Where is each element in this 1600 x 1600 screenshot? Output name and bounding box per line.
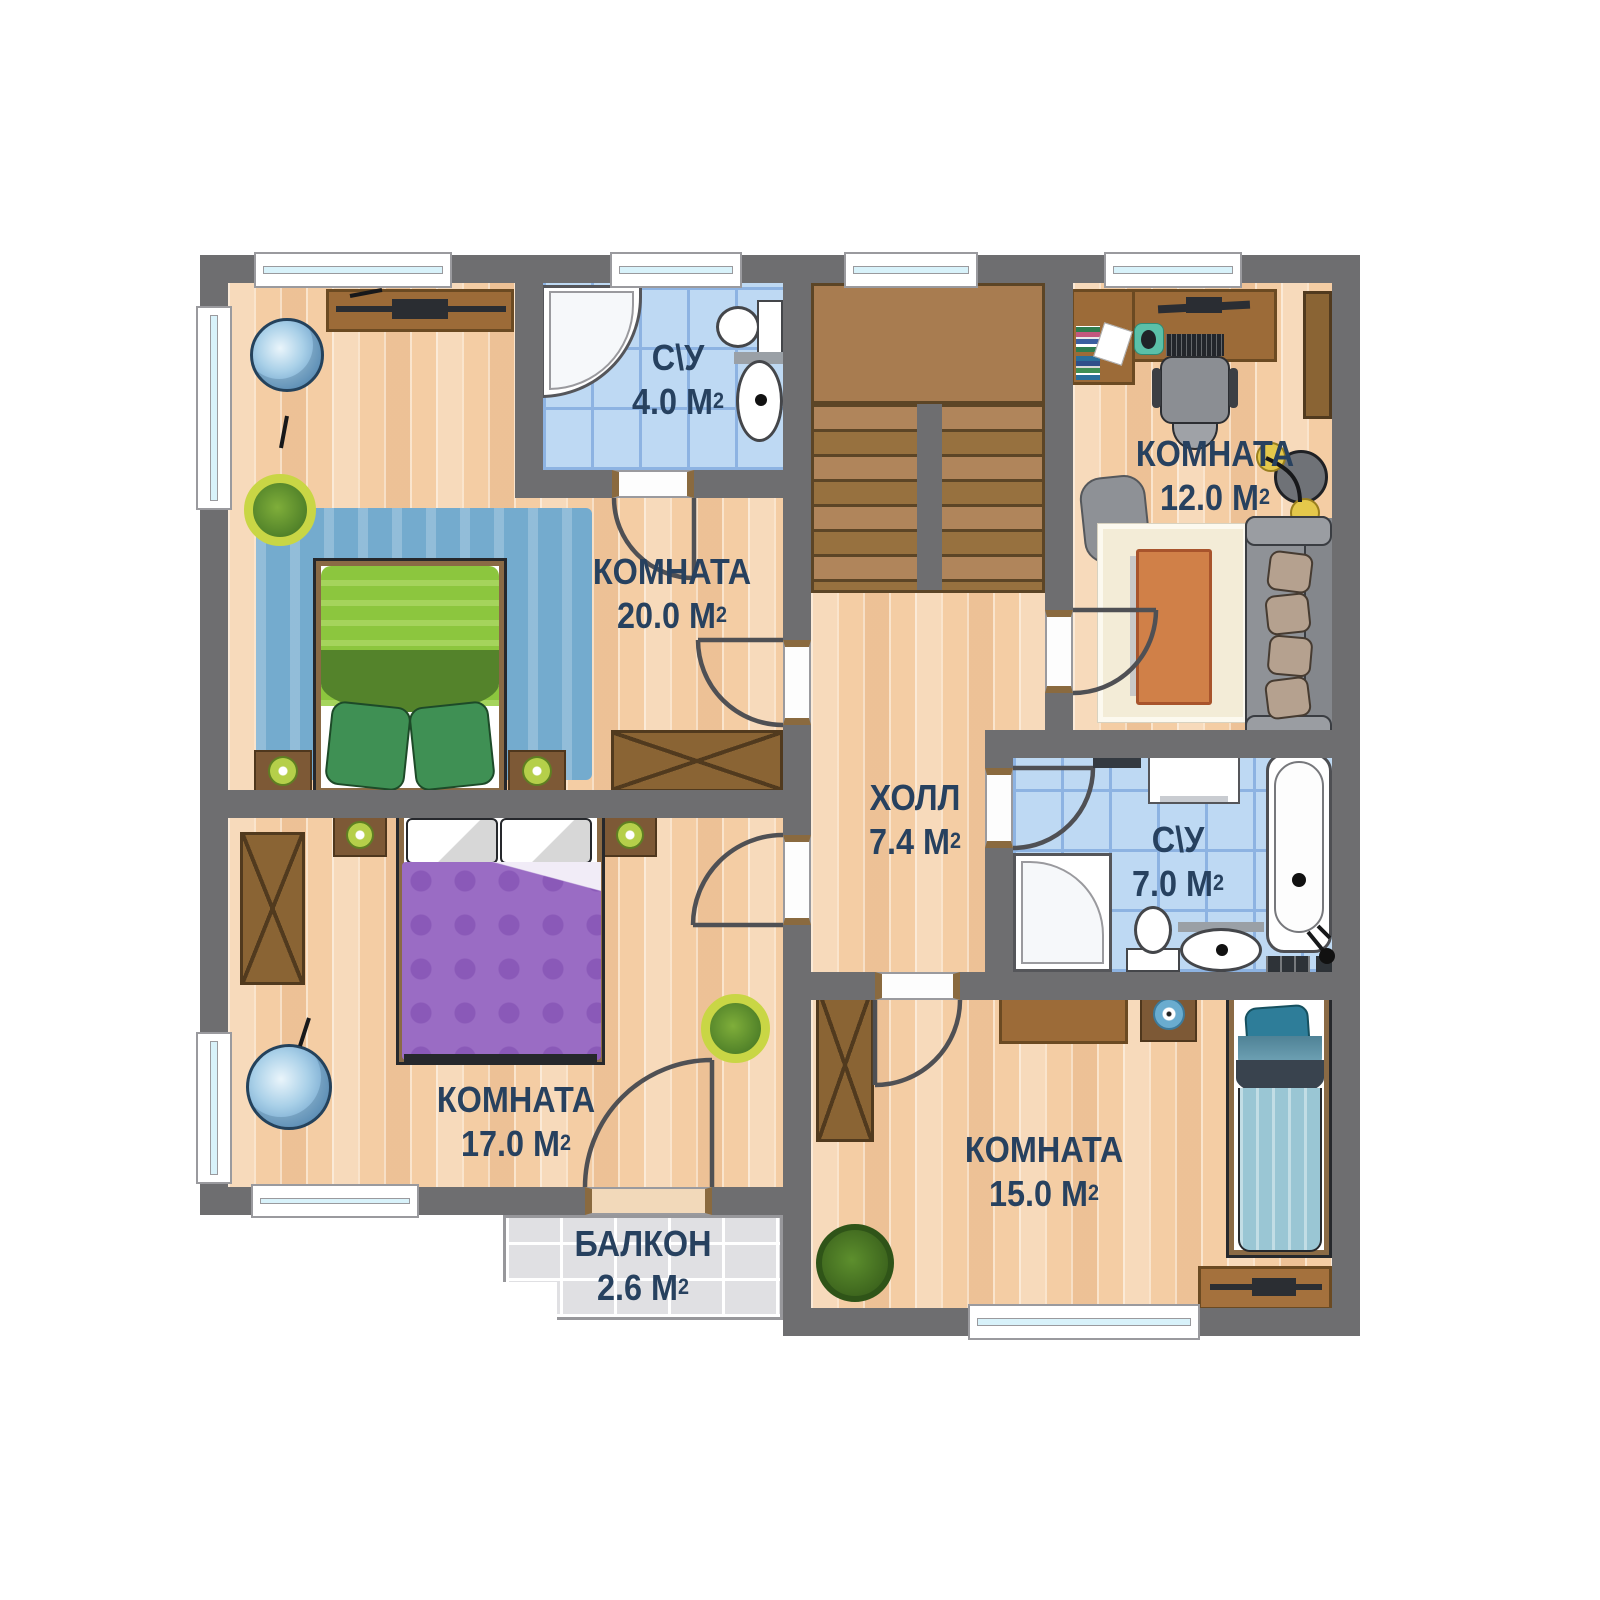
lamp-icon [268,756,298,786]
wall-hall-room15 [783,972,1360,1000]
area-sup: 2 [716,602,727,627]
area-value: 20.0 [617,595,680,636]
room-name: КОМНАТА [1136,432,1294,475]
room-area: 12.0 М2 [1136,475,1294,519]
area-unit: М [524,1123,560,1164]
door-bathroom-big [985,768,1013,848]
room-label-room-15: КОМНАТА 15.0 М2 [965,1128,1123,1215]
room-name: КОМНАТА [437,1078,595,1121]
window [844,252,978,288]
room-label-bathroom-big: С\У 7.0 М2 [1132,818,1224,905]
plant-icon [701,994,770,1063]
room-name: С\У [632,336,724,379]
lamp-icon [616,821,644,849]
window [968,1304,1200,1340]
area-value: 2.6 [597,1267,642,1308]
balcony-notch [503,1282,557,1320]
area-sup: 2 [1088,1180,1099,1205]
room-area: 15.0 М2 [965,1171,1123,1215]
room-label-room-20: КОМНАТА 20.0 М2 [593,550,751,637]
sink-drain-dot [755,394,767,406]
room-name: ХОЛЛ [869,776,961,819]
wall-right [1332,255,1360,1336]
door-room-20 [783,640,811,725]
area-value: 7.0 [1132,863,1177,904]
room-label-bathroom-small: С\У 4.0 М2 [632,336,724,423]
area-sup: 2 [678,1274,689,1299]
wardrobe-x [816,988,874,1142]
area-unit: М [677,381,713,422]
window [251,1184,419,1218]
armchair [246,1044,332,1130]
area-unit: М [680,595,716,636]
wall-bath-big-top [985,730,1332,758]
area-value: 17.0 [461,1123,524,1164]
wall-mid-vertical [783,283,811,1336]
door-room-12 [1045,610,1073,693]
plant-icon [244,474,316,546]
room-label-balcony: БАЛКОН 2.6 М2 [575,1222,712,1309]
lamp-icon [346,821,374,849]
bed-blanket-teal [1238,1088,1322,1252]
floor-plan: С\У 4.0 М2 КОМНАТА 20.0 М2 КОМНАТА 12.0 … [0,0,1600,1600]
area-value: 12.0 [1160,477,1223,518]
window [196,306,232,510]
area-unit: М [1223,477,1259,518]
door-bathroom-small [612,470,694,498]
window [1104,252,1242,288]
toilet-tank [757,300,783,354]
area-unit: М [642,1267,678,1308]
coffee-table [1136,549,1212,705]
tv-center-block [392,299,448,319]
room-area: 2.6 М2 [575,1265,712,1309]
dresser-x [611,730,783,792]
bed-pillow-white [500,818,592,864]
area-unit: М [914,821,950,862]
staircase [811,283,1045,593]
bed-pillow-green [408,700,496,792]
plant-icon [816,1224,894,1302]
window [610,252,742,288]
room-label-room-12: КОМНАТА 12.0 М2 [1136,432,1294,519]
mouse-icon [1141,330,1156,349]
stairs-flight-left [814,404,917,590]
blanket-fold [402,862,601,918]
area-sup: 2 [1213,870,1224,895]
window [196,1032,232,1184]
toilet-bowl-icon [1134,906,1172,954]
sofa-cushion [1266,549,1315,594]
sofa-cushion [1264,592,1312,636]
area-value: 15.0 [989,1173,1052,1214]
room-area: 7.4 М2 [869,819,961,863]
stairs-divider-wall [917,404,942,590]
tv-center-block [1252,1278,1296,1296]
books-stack [1076,356,1100,380]
room-name: БАЛКОН [575,1222,712,1265]
area-sup: 2 [713,388,724,413]
area-unit: М [1052,1173,1088,1214]
wall-room20-room17 [228,790,783,818]
room-area: 20.0 М2 [593,593,751,637]
area-unit: М [1177,863,1213,904]
room-name: С\У [1132,818,1224,861]
office-chair-seat [1160,356,1230,424]
sofa-armrest [1245,516,1332,546]
wardrobe-x [240,832,305,985]
lamp-icon [1153,998,1185,1030]
sofa-cushion [1266,634,1313,678]
office-chair-armrest [1152,368,1161,408]
sink-drain-dot [1216,944,1228,956]
floor-hall-upper [811,593,1045,730]
room-label-hall: ХОЛЛ 7.4 М2 [869,776,961,863]
area-sup: 2 [1259,484,1270,509]
bathtub-inner [1274,761,1324,933]
monitor-base [1186,297,1222,313]
keyboard-icon [1166,334,1224,356]
sofa-cushion [1264,675,1313,720]
room-area: 17.0 М2 [437,1121,595,1165]
room-area: 7.0 М2 [1132,861,1224,905]
room-name: КОМНАТА [965,1128,1123,1171]
stairs-flight-right [942,404,1042,590]
room-area: 4.0 М2 [632,379,724,423]
door-room-17 [783,835,811,925]
bed-pillow-green [324,700,412,792]
room-label-room-17: КОМНАТА 17.0 М2 [437,1078,595,1165]
area-value: 4.0 [632,381,677,422]
area-value: 7.4 [869,821,914,862]
door-balcony [585,1187,712,1215]
bed-pillow-white [406,818,498,864]
door-room-15 [875,972,960,1000]
stairs-landing [814,286,1042,404]
area-sup: 2 [560,1130,571,1155]
office-chair-armrest [1229,368,1238,408]
armchair [250,318,324,392]
wall-bath-small-left [515,283,543,498]
wardrobe [1303,291,1332,419]
room-name: КОМНАТА [593,550,751,593]
area-sup: 2 [950,828,961,853]
lamp-icon [522,756,552,786]
window [254,252,452,288]
washing-machine-tray [1160,796,1228,802]
bed-foot-bar [404,1054,597,1062]
